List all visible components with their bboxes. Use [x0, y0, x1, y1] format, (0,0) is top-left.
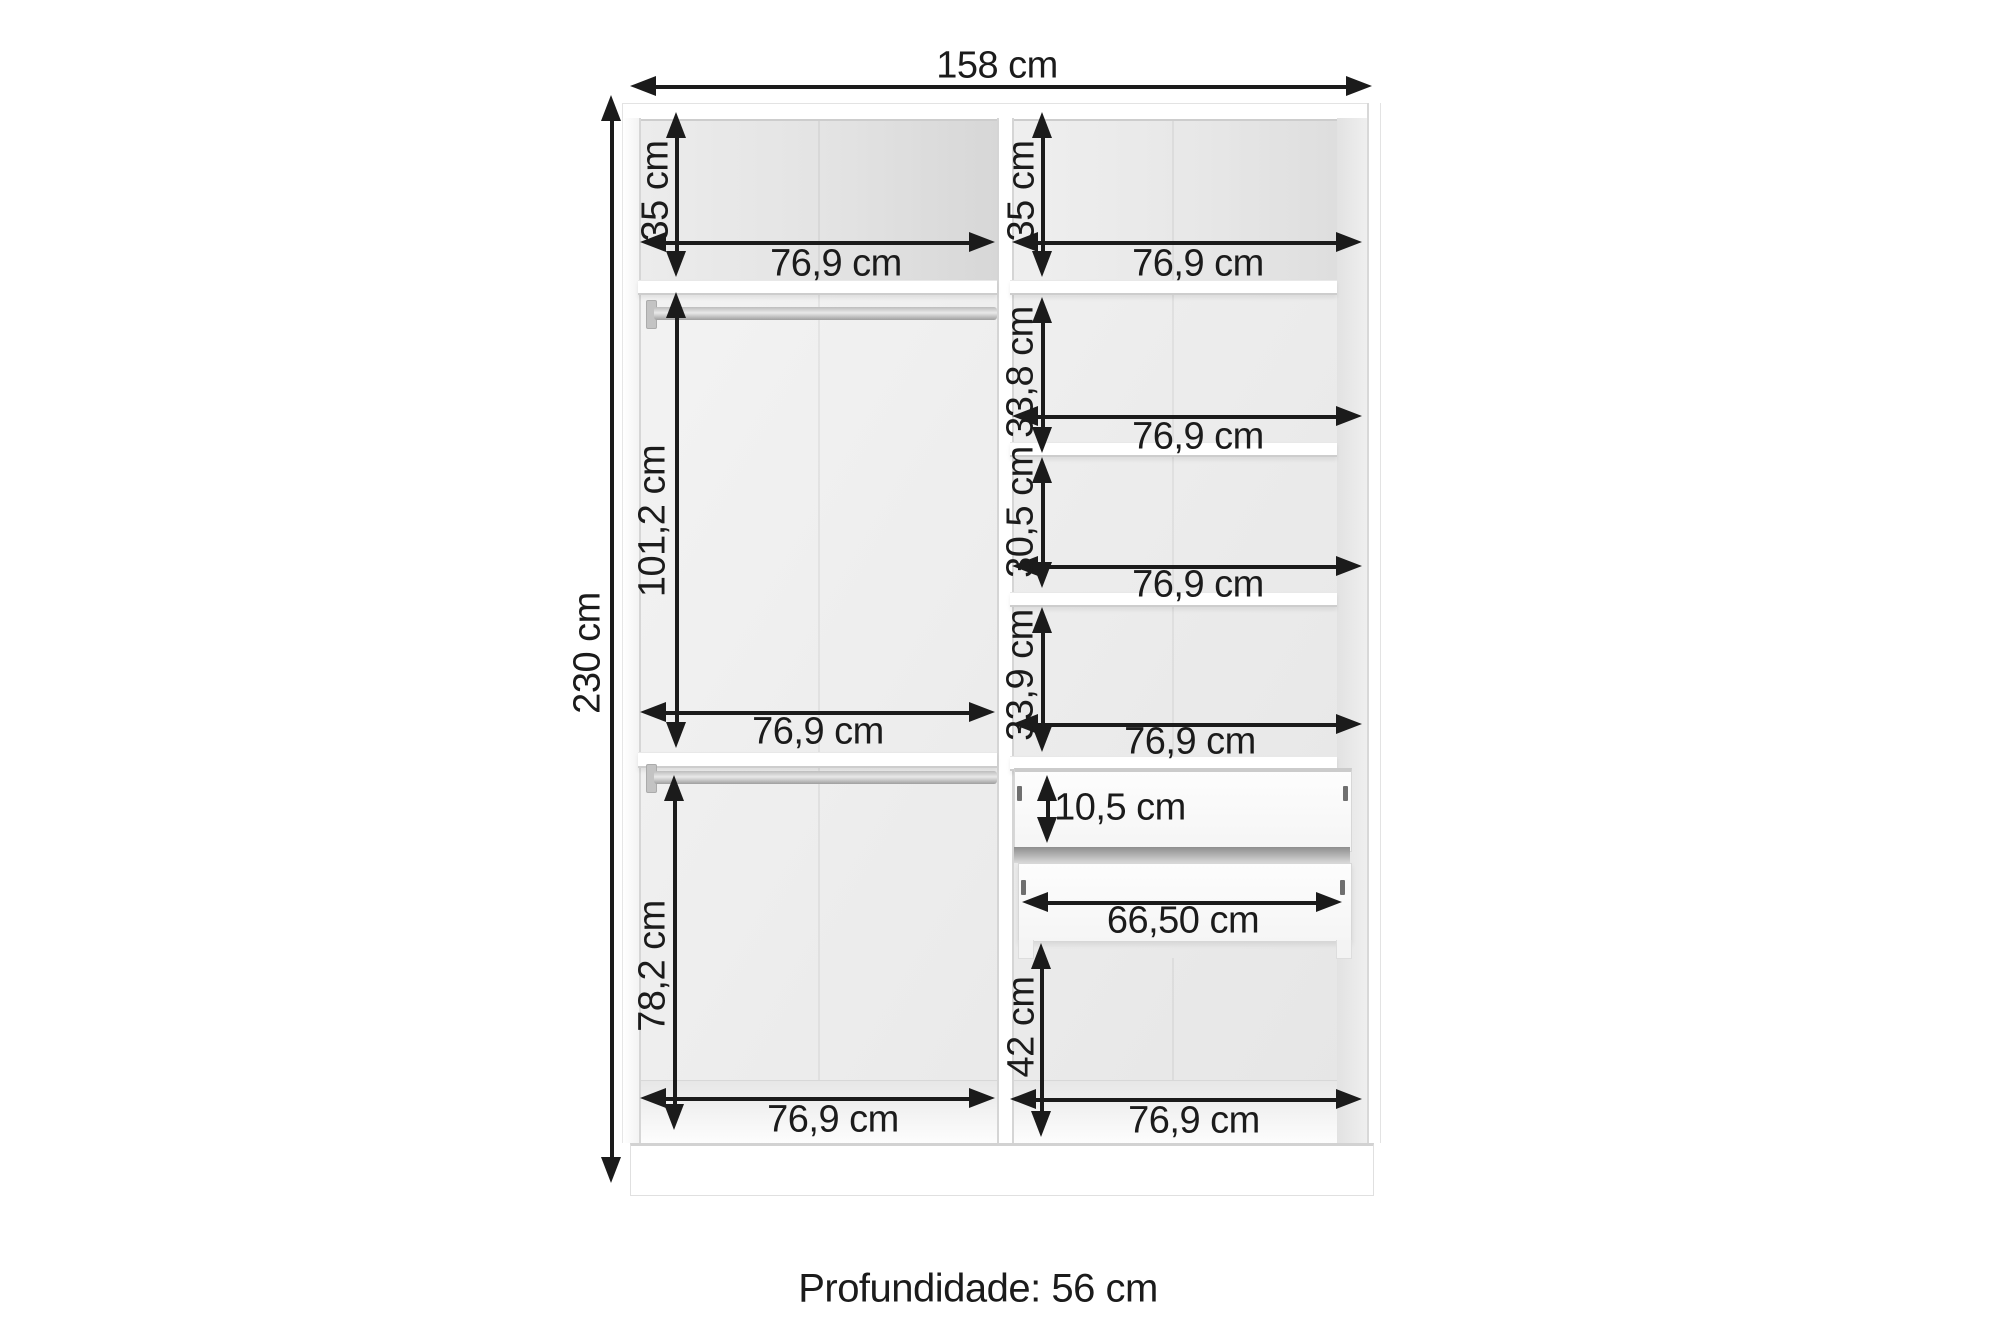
- dim-label-left-section3-width: 76,9 cm: [767, 1099, 899, 1142]
- dim-label-drawer-height: 10,5 cm: [1054, 787, 1186, 830]
- dim-line: [610, 115, 614, 1163]
- dim-label-drawer-width: 66,50 cm: [1107, 900, 1259, 943]
- cabinet-right-wall-outer-face: [1367, 103, 1381, 1143]
- drawer-slide-mark: [1343, 786, 1348, 801]
- drawer-side-cheek-right: [1336, 940, 1352, 959]
- dim-label-right-section1-height: 35 cm: [1001, 141, 1044, 242]
- dim-label-right-section2-height: 33,8 cm: [1000, 306, 1043, 438]
- dim-line: [1046, 795, 1050, 823]
- dim-label-right-section5-height: 42 cm: [1001, 977, 1044, 1078]
- dim-label-total-width: 158 cm: [936, 45, 1058, 88]
- dim-label-total-height: 230 cm: [567, 592, 610, 714]
- left-shelf-lower: [638, 752, 997, 768]
- dim-label-left-section2-height: 101,2 cm: [632, 445, 675, 597]
- dim-label-left-section1-height: 35 cm: [635, 141, 678, 242]
- wardrobe-dimension-diagram: 158 cm 230 cm 35 cm 76,9 cm 101,2 cm 76,…: [0, 0, 2000, 1333]
- dim-label-left-section3-height: 78,2 cm: [632, 900, 675, 1032]
- dim-label-right-section2-width: 76,9 cm: [1132, 416, 1264, 459]
- dim-label-left-section2-width: 76,9 cm: [752, 711, 884, 754]
- dim-label-right-section3-width: 76,9 cm: [1132, 564, 1264, 607]
- cabinet-right-wall-inner-face: [1337, 118, 1367, 1143]
- dim-label-right-section4-height: 33,9 cm: [1000, 609, 1043, 741]
- hanging-rod-upper: [654, 307, 997, 320]
- dim-label-right-section3-height: 30,5 cm: [1000, 446, 1043, 578]
- dim-line: [675, 312, 679, 728]
- drawer-rail-gap: [1014, 847, 1350, 863]
- cabinet-plinth: [630, 1143, 1374, 1196]
- dim-label-left-section1-width: 76,9 cm: [770, 243, 902, 286]
- hanging-rod-lower: [654, 771, 997, 784]
- dim-label-right-section4-width: 76,9 cm: [1124, 721, 1256, 764]
- back-panel-seam-right-lower: [1172, 958, 1174, 1080]
- dim-label-right-section1-width: 76,9 cm: [1132, 243, 1264, 286]
- dim-label-right-section5-width: 76,9 cm: [1128, 1100, 1260, 1143]
- drawer-slide-mark: [1017, 786, 1022, 801]
- depth-note: Profundidade: 56 cm: [798, 1267, 1158, 1312]
